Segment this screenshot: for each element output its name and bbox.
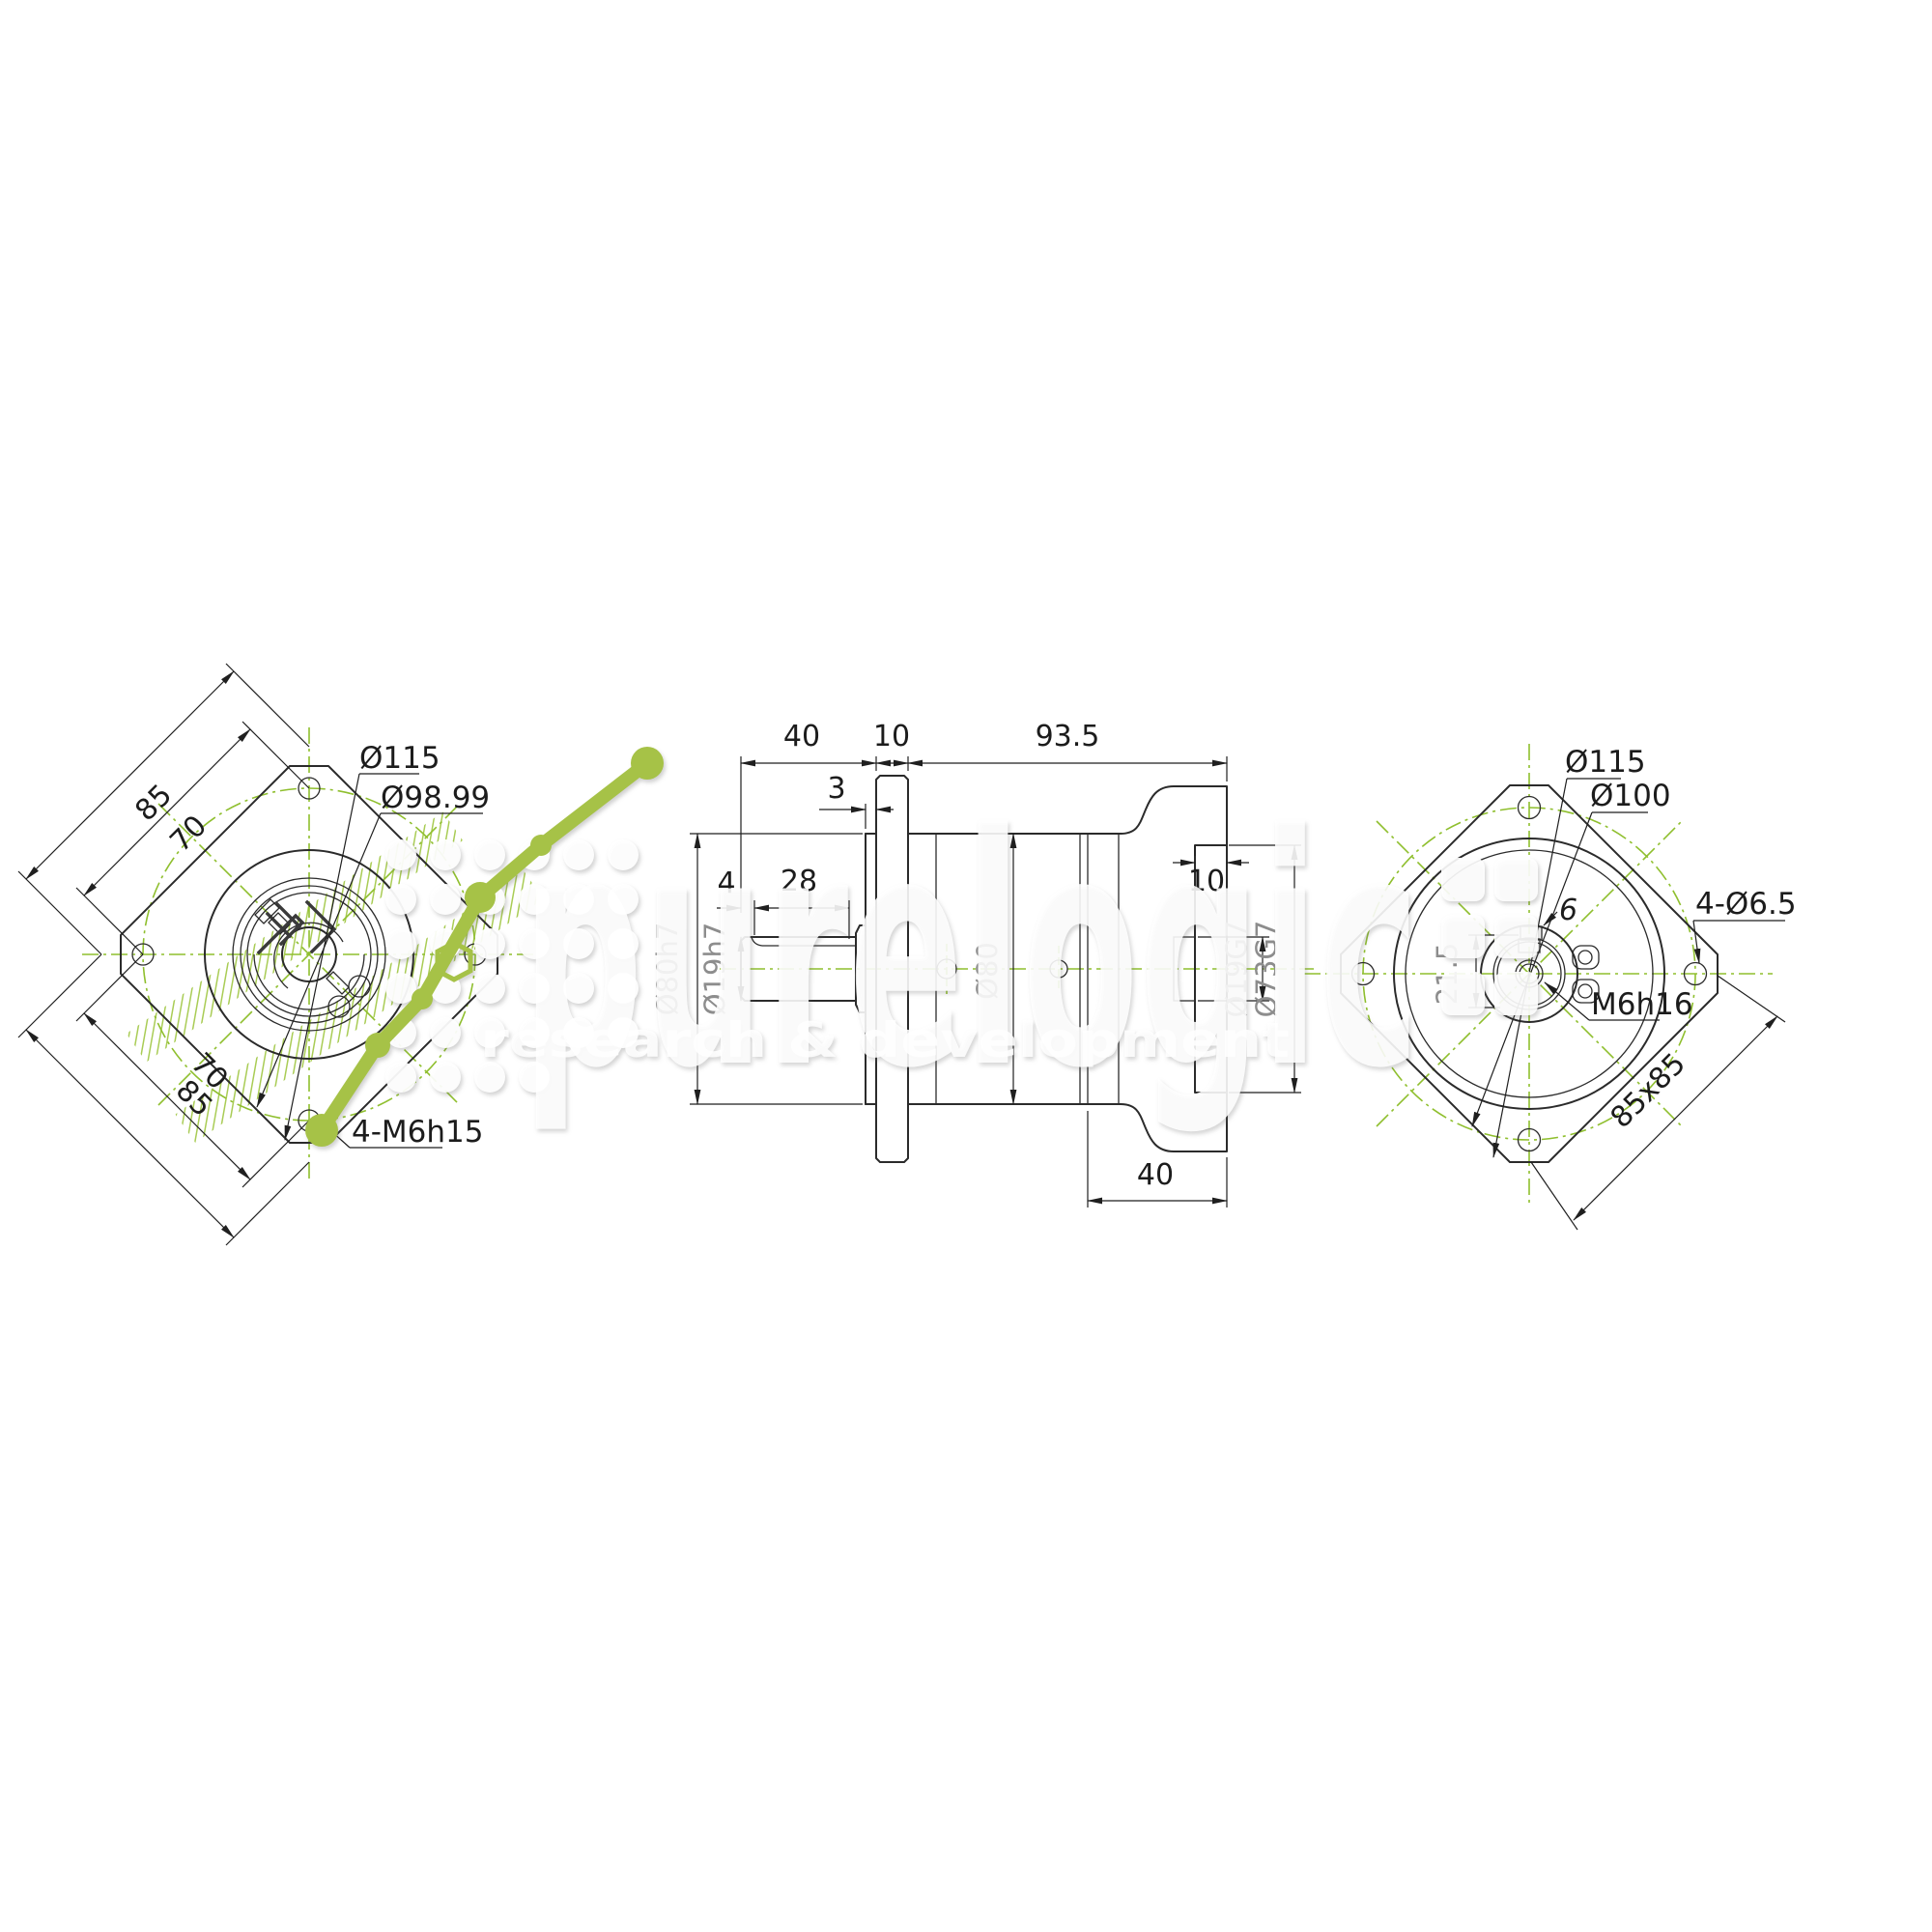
right-label-bolts: 4-Ø6.5: [1695, 887, 1797, 922]
watermark: purelogic research & development: [305, 747, 1538, 1147]
left-dim-85-top: 85: [128, 778, 179, 828]
technical-drawing: 85 70 70 85 Ø115 Ø98.99 4-M6h15: [0, 0, 1932, 1932]
mid-dim-40-bottom: 40: [1137, 1158, 1174, 1192]
right-view-dim-6: 6: [1544, 894, 1577, 927]
left-view: 85 70 70 85 Ø115 Ø98.99 4-M6h15: [18, 664, 544, 1245]
watermark-tagline: research & development: [480, 1012, 1290, 1068]
logo-node: [412, 988, 433, 1009]
right-dim-6: 6: [1559, 894, 1577, 927]
logo-node: [465, 882, 496, 913]
mid-dim-935-top: 93.5: [1036, 720, 1100, 753]
logo-node: [631, 747, 664, 780]
watermark-block-grid: [1441, 858, 1538, 1015]
drawing-canvas: 85 70 70 85 Ø115 Ø98.99 4-M6h15: [0, 0, 1932, 1932]
mid-dim-40-top: 40: [783, 720, 820, 753]
left-label-bolts: 4-M6h15: [352, 1115, 483, 1150]
watermark-brand: purelogic: [522, 767, 1420, 1138]
right-label-thread: M6h16: [1591, 987, 1693, 1022]
logo-node: [365, 1033, 390, 1058]
left-label-d115: Ø115: [359, 741, 440, 776]
mid-dim-10-top: 10: [873, 720, 910, 753]
right-label-d100: Ø100: [1590, 779, 1671, 813]
logo-node: [530, 835, 552, 856]
right-label-d115: Ø115: [1565, 745, 1646, 780]
left-label-d9899: Ø98.99: [381, 781, 490, 815]
logo-node: [305, 1114, 338, 1147]
